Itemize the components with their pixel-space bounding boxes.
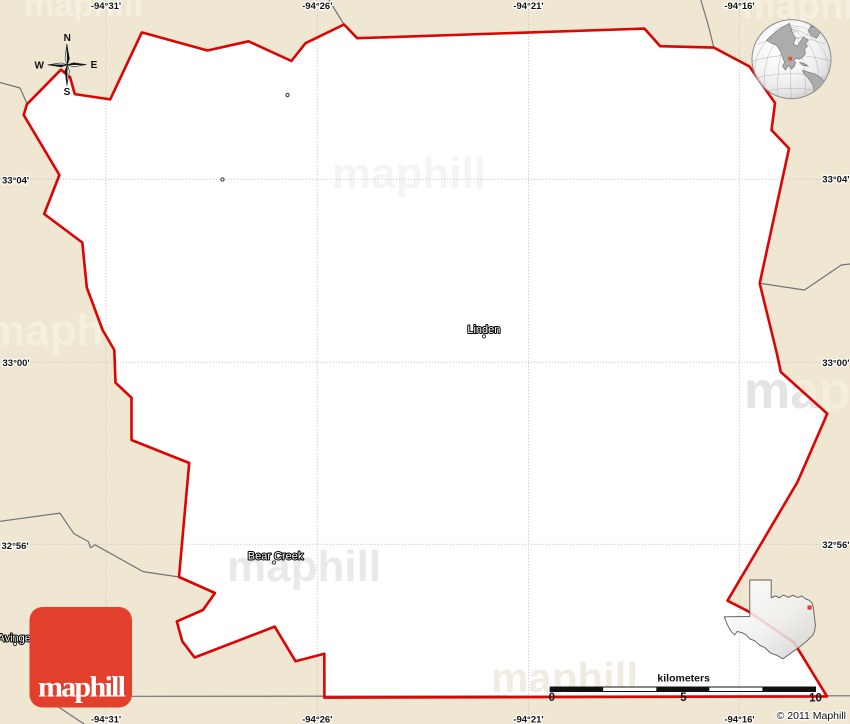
svg-text:32°56': 32°56' [822, 540, 849, 551]
svg-text:-94°31': -94°31' [91, 714, 121, 724]
svg-text:E: E [91, 60, 98, 71]
svg-text:Bear Creek: Bear Creek [248, 551, 304, 563]
svg-text:10: 10 [809, 693, 822, 705]
svg-text:-94°31': -94°31' [91, 1, 121, 12]
svg-text:0: 0 [549, 692, 555, 704]
svg-text:-94°16': -94°16' [724, 1, 754, 12]
svg-text:Linden: Linden [467, 324, 500, 336]
svg-text:N: N [64, 33, 71, 44]
svg-text:© 2011 Maphill: © 2011 Maphill [777, 710, 846, 722]
svg-text:W: W [34, 61, 44, 72]
svg-text:-94°16': -94°16' [724, 714, 754, 724]
svg-text:33°04': 33°04' [2, 176, 29, 187]
svg-text:maphill: maphill [24, 0, 143, 24]
svg-text:33°00': 33°00' [3, 358, 30, 369]
svg-text:-94°21': -94°21' [513, 1, 543, 12]
svg-text:maphill: maphill [332, 149, 486, 198]
svg-text:maphill: maphill [38, 671, 126, 704]
svg-text:33°00': 33°00' [822, 358, 849, 369]
svg-text:-94°26': -94°26' [302, 714, 332, 724]
svg-text:maphill: maphill [227, 542, 381, 591]
svg-text:-94°21': -94°21' [513, 714, 543, 724]
svg-text:maphill: maphill [491, 654, 638, 701]
svg-text:32°56': 32°56' [2, 541, 29, 552]
svg-text:5: 5 [680, 692, 687, 704]
svg-text:-94°26': -94°26' [302, 1, 332, 12]
svg-text:kilometers: kilometers [657, 673, 710, 685]
svg-text:33°04': 33°04' [822, 175, 849, 186]
svg-text:S: S [64, 87, 71, 98]
